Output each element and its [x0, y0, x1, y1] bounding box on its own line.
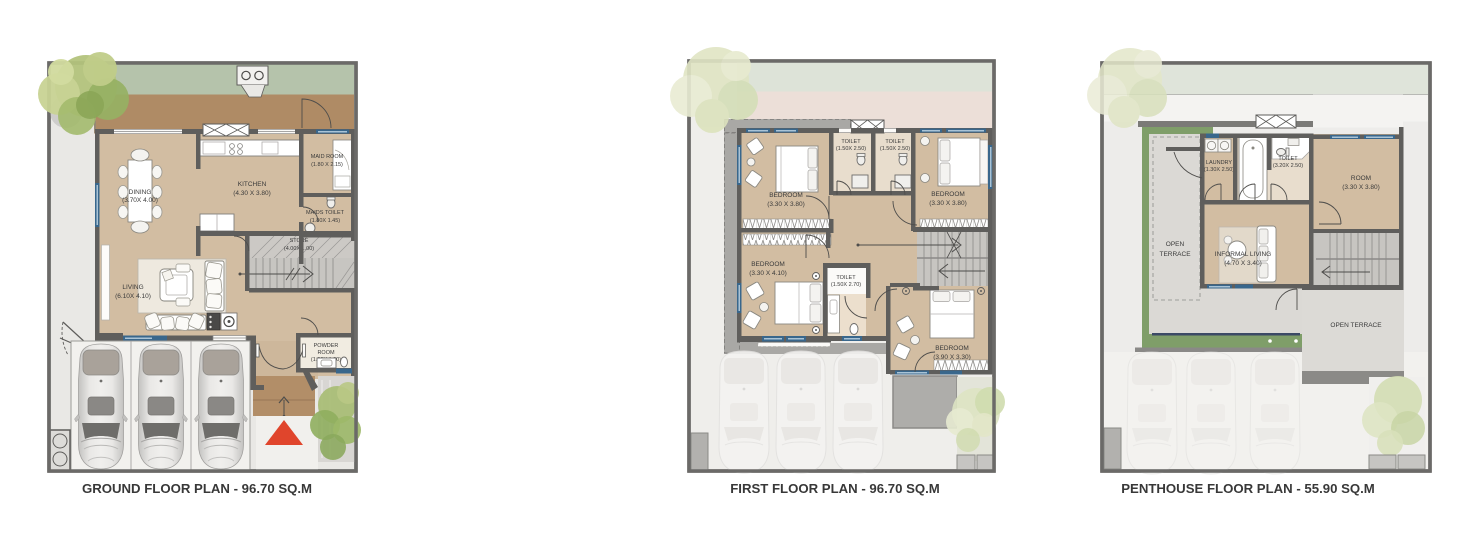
- svg-text:TOILET: TOILET: [841, 139, 861, 145]
- svg-text:ROOM: ROOM: [317, 350, 335, 356]
- svg-text:OPEN: OPEN: [1166, 241, 1185, 248]
- svg-text:(3.30 X 3.80): (3.30 X 3.80): [767, 201, 805, 208]
- svg-text:BEDROOM: BEDROOM: [769, 192, 803, 199]
- svg-text:(4.70 X 3.40): (4.70 X 3.40): [1224, 260, 1262, 267]
- svg-text:LAUNDRY: LAUNDRY: [1206, 160, 1233, 166]
- svg-text:TOILET: TOILET: [885, 139, 905, 145]
- svg-text:(4.30 X 3.80): (4.30 X 3.80): [233, 190, 271, 197]
- svg-text:TERRACE: TERRACE: [1159, 251, 1191, 258]
- svg-text:(3.30 X 3.80): (3.30 X 3.80): [929, 200, 967, 207]
- svg-text:(3.70X 4.00): (3.70X 4.00): [122, 197, 158, 204]
- svg-text:LIVING: LIVING: [122, 284, 143, 291]
- svg-text:(3.30 X 3.80): (3.30 X 3.80): [1342, 184, 1380, 191]
- svg-text:PENTHOUSE FLOOR PLAN - 55.90: PENTHOUSE FLOOR PLAN - 55.90 SQ.M: [1121, 481, 1375, 496]
- svg-text:BEDROOM: BEDROOM: [935, 345, 969, 352]
- svg-text:(3.20X 2.50): (3.20X 2.50): [1273, 163, 1303, 169]
- svg-text:POWDER: POWDER: [314, 343, 339, 349]
- svg-text:(1.80X 1.45): (1.80X 1.45): [310, 218, 340, 224]
- svg-text:MAID ROOM: MAID ROOM: [311, 154, 344, 160]
- svg-text:(1.80 X 2.15): (1.80 X 2.15): [311, 162, 343, 168]
- svg-text:BEDROOM: BEDROOM: [751, 261, 785, 268]
- svg-text:DINING: DINING: [129, 189, 152, 196]
- svg-text:ROOM: ROOM: [1351, 175, 1371, 182]
- svg-text:OPEN TERRACE: OPEN TERRACE: [1330, 322, 1382, 329]
- svg-text:(3.30 X 4.10): (3.30 X 4.10): [749, 270, 787, 277]
- svg-text:(6.10X 4.10): (6.10X 4.10): [115, 293, 151, 300]
- svg-text:(1.50X 2.70): (1.50X 2.70): [831, 282, 861, 288]
- svg-text:INFORMAL LIVING: INFORMAL LIVING: [1215, 251, 1271, 258]
- svg-text:KITCHEN: KITCHEN: [238, 181, 267, 188]
- svg-text:TOILET: TOILET: [1278, 156, 1298, 162]
- svg-text:BEDROOM: BEDROOM: [931, 191, 965, 198]
- svg-text:TOILET: TOILET: [836, 275, 856, 281]
- svg-text:(1.50X 2.50): (1.50X 2.50): [880, 146, 910, 152]
- svg-text:FIRST FLOOR PLAN - 96.70 SQ.M: FIRST FLOOR PLAN - 96.70 SQ.M: [730, 481, 940, 496]
- svg-text:MAIDS TOILET: MAIDS TOILET: [306, 210, 345, 216]
- svg-text:(1.50X 2.50): (1.50X 2.50): [836, 146, 866, 152]
- svg-text:GROUND FLOOR PLAN - 96.70 SQ.M: GROUND FLOOR PLAN - 96.70 SQ.M: [82, 481, 312, 496]
- svg-text:(1.30X 2.50): (1.30X 2.50): [1204, 167, 1234, 173]
